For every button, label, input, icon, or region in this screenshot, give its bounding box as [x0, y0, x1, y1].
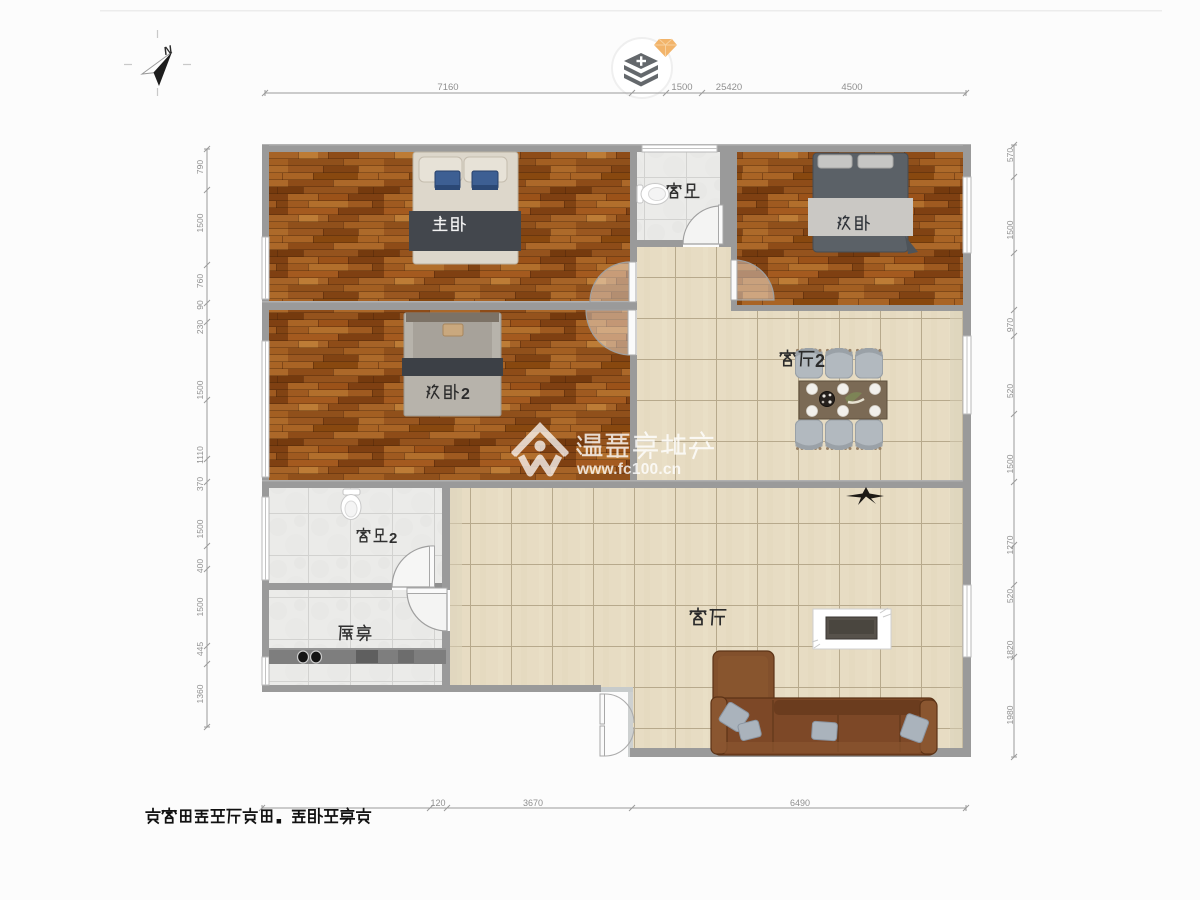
svg-text:230: 230 [195, 320, 205, 334]
svg-text:1110: 1110 [195, 446, 205, 464]
svg-text:520: 520 [1005, 589, 1015, 603]
svg-text:1500: 1500 [195, 380, 205, 399]
svg-text:1360: 1360 [195, 684, 205, 703]
svg-text:400: 400 [195, 559, 205, 573]
svg-text:1500: 1500 [1005, 454, 1015, 473]
svg-text:25420: 25420 [716, 82, 742, 93]
svg-text:2: 2 [389, 530, 397, 547]
svg-text:6490: 6490 [790, 798, 810, 808]
svg-text:445: 445 [195, 642, 205, 656]
svg-text:2: 2 [815, 351, 825, 371]
svg-text:1500: 1500 [671, 82, 692, 93]
svg-text:760: 760 [195, 274, 205, 288]
svg-text:90: 90 [195, 300, 205, 310]
svg-text:7160: 7160 [437, 82, 458, 93]
svg-text:4500: 4500 [841, 82, 862, 93]
svg-text:520: 520 [1005, 384, 1015, 398]
svg-text:2: 2 [461, 386, 470, 403]
svg-text:1980: 1980 [1005, 705, 1015, 724]
svg-text:1820: 1820 [1005, 640, 1015, 659]
svg-text:370: 370 [195, 477, 205, 491]
svg-text:1500: 1500 [195, 213, 205, 232]
svg-text:1500: 1500 [195, 597, 205, 616]
svg-text:3670: 3670 [523, 798, 543, 808]
svg-text:1500: 1500 [1005, 220, 1015, 239]
svg-text:www.fc100.cn: www.fc100.cn [576, 461, 681, 478]
svg-text:790: 790 [195, 160, 205, 174]
svg-text:970: 970 [1005, 318, 1015, 332]
svg-text:1500: 1500 [195, 519, 205, 538]
svg-text:570: 570 [1005, 148, 1015, 162]
svg-text:120: 120 [430, 798, 445, 808]
svg-text:1270: 1270 [1005, 535, 1015, 554]
